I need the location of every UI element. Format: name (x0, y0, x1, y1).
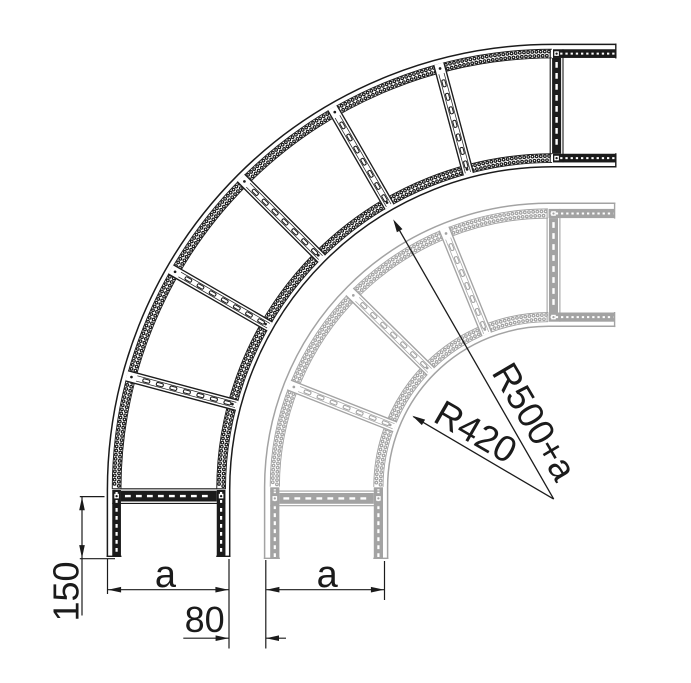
svg-text:80: 80 (185, 599, 225, 640)
svg-text:150: 150 (45, 561, 86, 621)
svg-text:a: a (155, 554, 177, 596)
svg-text:a: a (317, 554, 339, 596)
